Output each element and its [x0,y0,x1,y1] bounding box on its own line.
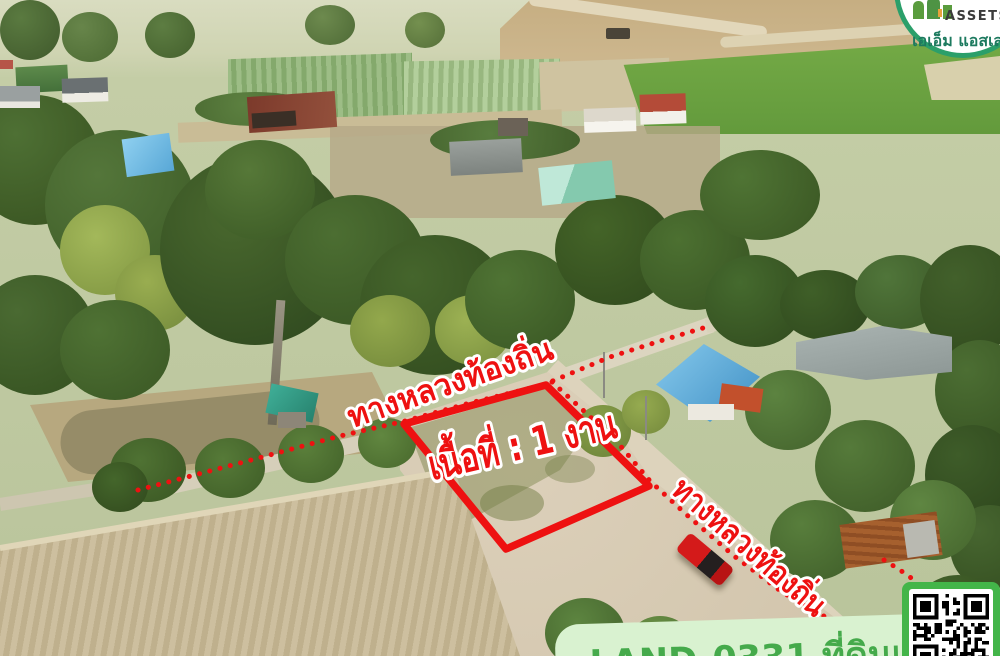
annotation-overlay: ทางหลวงท้องถิ่น เนื้อที่ : 1 งาน ทางหลวง… [0,0,1000,656]
logo-thai-name: เอเอ็ม แอสเสท [899,29,1000,54]
logo-building-icon [913,1,924,19]
qr-code-inner [909,589,993,656]
company-logo: ASSETS เอเอ็ม แอสเสท [894,0,1000,58]
logo-assets-label: ASSETS [945,9,1000,24]
logo-accent-mark [938,9,942,17]
qr-pattern [913,594,989,656]
qr-code [902,582,1000,656]
aerial-photo: ทางหลวงท้องถิ่น เนื้อที่ : 1 งาน ทางหลวง… [0,0,1000,656]
dotted-boundary-corner [884,560,914,580]
road-label-top: ทางหลวงท้องถิ่น [341,327,558,436]
road-label-right: ทางหลวงท้องถิ่น [665,467,837,624]
dotted-boundary-top-road [543,328,703,385]
